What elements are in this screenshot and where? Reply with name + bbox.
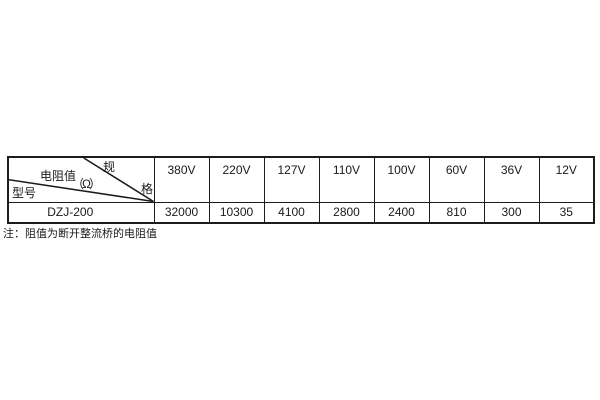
model-cell: DZJ-200: [8, 202, 154, 223]
value-cell-127v: 4100: [264, 202, 319, 223]
page: 规 格 电阻值 （Ω） 型号 380V 220V 127V 110V 100V …: [0, 0, 600, 400]
corner-label-resistance: 电阻值: [40, 170, 76, 182]
resistance-spec-table: 规 格 电阻值 （Ω） 型号 380V 220V 127V 110V 100V …: [7, 156, 595, 224]
voltage-header-110v: 110V: [319, 157, 374, 202]
table-row: DZJ-200 32000 10300 4100 2800 2400 810 3…: [8, 202, 594, 223]
corner-label-spec-bottom: 格: [141, 183, 153, 195]
voltage-header-36v: 36V: [484, 157, 539, 202]
value-cell-36v: 300: [484, 202, 539, 223]
note-text: 注：阻值为断开整流桥的电阻值: [3, 227, 157, 241]
value-cell-60v: 810: [429, 202, 484, 223]
corner-cell: 规 格 电阻值 （Ω） 型号: [8, 157, 154, 202]
voltage-header-380v: 380V: [154, 157, 209, 202]
value-cell-380v: 32000: [154, 202, 209, 223]
voltage-header-220v: 220V: [209, 157, 264, 202]
corner-label-resistance-unit: （Ω）: [72, 178, 99, 190]
corner-label-spec-top: 规: [103, 161, 115, 173]
header-row: 规 格 电阻值 （Ω） 型号 380V 220V 127V 110V 100V …: [8, 157, 594, 202]
voltage-header-100v: 100V: [374, 157, 429, 202]
value-cell-220v: 10300: [209, 202, 264, 223]
corner-label-model: 型号: [12, 187, 36, 199]
voltage-header-127v: 127V: [264, 157, 319, 202]
voltage-header-12v: 12V: [539, 157, 594, 202]
value-cell-110v: 2800: [319, 202, 374, 223]
value-cell-100v: 2400: [374, 202, 429, 223]
value-cell-12v: 35: [539, 202, 594, 223]
voltage-header-60v: 60V: [429, 157, 484, 202]
